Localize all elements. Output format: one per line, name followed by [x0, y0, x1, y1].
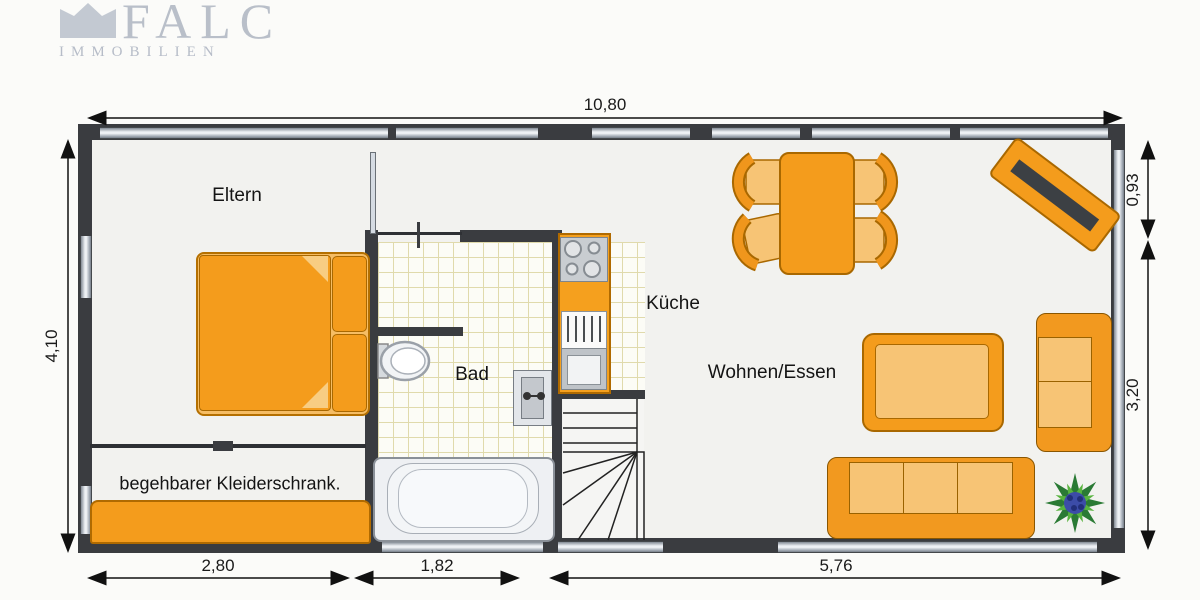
coffee-table-top — [875, 344, 989, 419]
bath-door-mark — [417, 222, 420, 248]
dim-right-lower: 3,20 — [1123, 378, 1143, 411]
bed-pillow-2 — [332, 334, 367, 412]
washbasin-inner — [521, 377, 544, 419]
sofa-two-seat-cushion-2 — [1038, 381, 1092, 428]
kitchen-sink-basin — [567, 355, 601, 385]
window-bottom-2 — [558, 541, 663, 553]
sofa-three-seat-cushion-1 — [849, 462, 905, 514]
window-bottom-3 — [778, 541, 1097, 553]
wardrobe-icon — [90, 500, 371, 544]
window-top-3 — [592, 127, 690, 139]
dining-table-icon — [779, 152, 855, 275]
window-top-5 — [812, 127, 950, 139]
bed-pillow-1 — [332, 256, 367, 332]
window-left-1 — [80, 236, 92, 298]
partition-eltern-hall — [370, 152, 376, 234]
dim-right-upper: 0,93 — [1123, 173, 1143, 206]
window-top-2 — [396, 127, 538, 139]
wall-closet-door — [213, 441, 233, 451]
falc-logo-text: FALC — [122, 0, 282, 50]
window-top-6 — [960, 127, 1108, 139]
stove-icon — [560, 237, 608, 282]
window-top-1 — [100, 127, 388, 139]
room-label-wohnen-essen: Wohnen/Essen — [708, 362, 837, 384]
staircase-floor — [563, 399, 644, 540]
window-right — [1113, 150, 1125, 528]
bathtub-basin — [398, 469, 528, 528]
dim-bottom-left: 2,80 — [201, 556, 234, 576]
wall-bath-top — [460, 230, 552, 242]
sofa-three-seat-cushion-2 — [903, 462, 959, 514]
window-bottom-1 — [382, 541, 543, 553]
room-label-bad: Bad — [455, 364, 489, 386]
window-top-4 — [712, 127, 800, 139]
dim-left: 4,10 — [42, 329, 62, 362]
room-label-eltern: Eltern — [212, 185, 262, 207]
sofa-three-seat-cushion-3 — [957, 462, 1013, 514]
room-label-kueche: Küche — [646, 293, 700, 315]
bed-blanket — [199, 255, 331, 411]
floor-plan-page: FALC IMMOBILIEN — [0, 0, 1200, 600]
dim-bottom-right: 5,76 — [819, 556, 852, 576]
wall-bath-door-header — [378, 232, 462, 235]
dim-top: 10,80 — [584, 95, 627, 115]
dim-bottom-middle: 1,82 — [420, 556, 453, 576]
sofa-two-seat-cushion-1 — [1038, 337, 1092, 383]
wall-bath-inner-stub — [378, 327, 463, 336]
falc-logo-subtitle: IMMOBILIEN — [59, 44, 221, 61]
dish-drainer-icon — [561, 311, 607, 349]
room-label-kleiderschrank: begehbarer Kleiderschrank. — [119, 474, 340, 495]
